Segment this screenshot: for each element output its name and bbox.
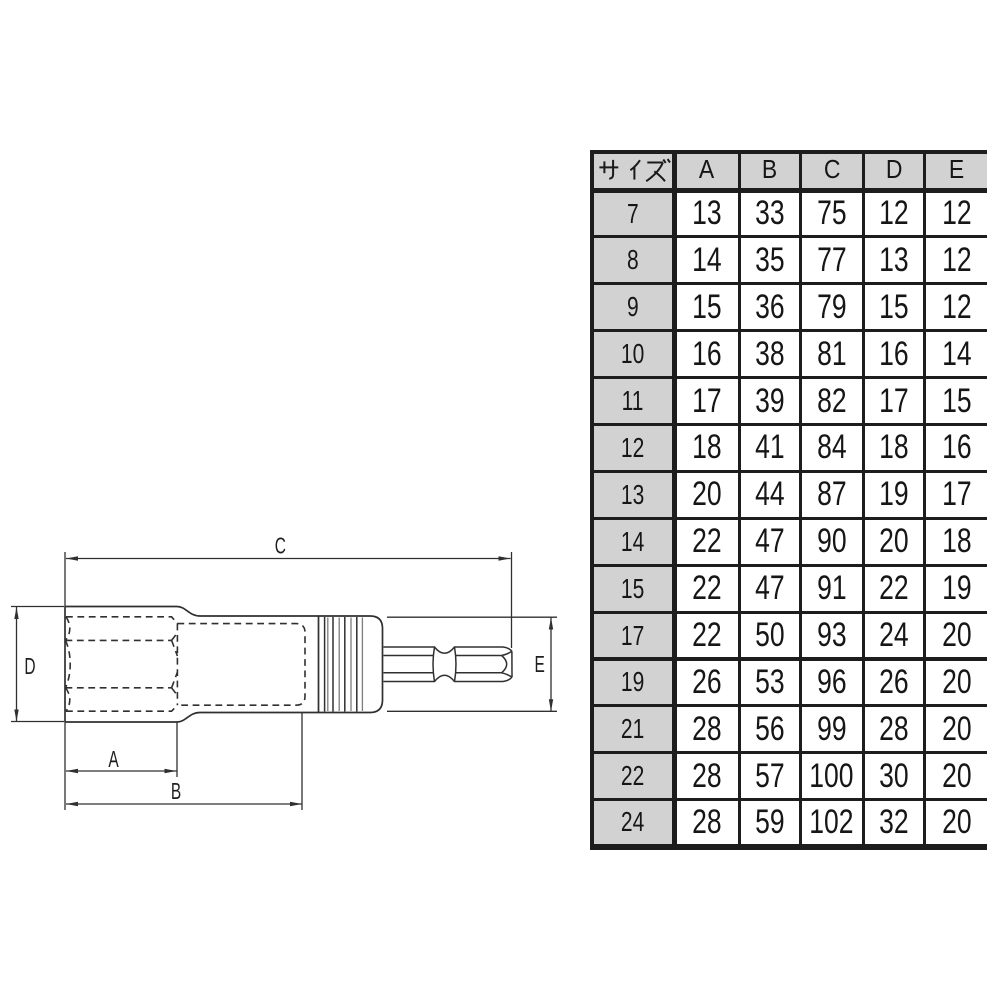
svg-text:A: A <box>108 747 119 773</box>
svg-text:E: E <box>535 652 545 678</box>
svg-text:B: B <box>171 779 181 805</box>
svg-text:C: C <box>275 534 286 560</box>
svg-text:D: D <box>24 654 35 680</box>
